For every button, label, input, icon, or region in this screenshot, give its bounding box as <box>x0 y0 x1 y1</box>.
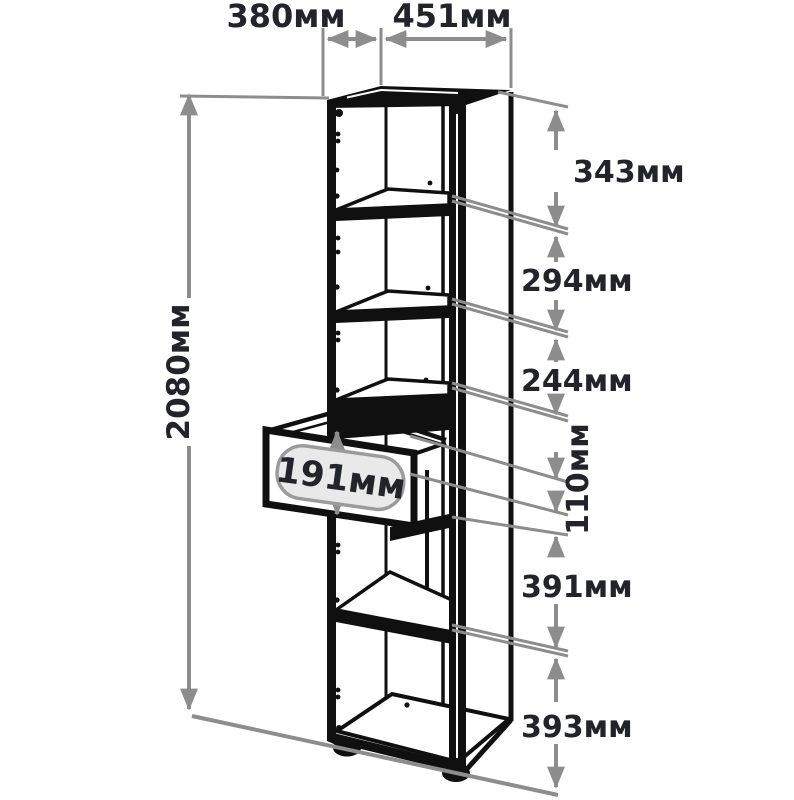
section-label-343: 343мм <box>573 155 685 190</box>
shelf-2 <box>336 291 449 323</box>
shelf-1 <box>336 189 449 221</box>
section-label-393: 393мм <box>521 710 633 745</box>
section-label-294: 294мм <box>521 264 633 299</box>
cabinet-drawing <box>266 86 511 782</box>
section-label-391: 391мм <box>521 570 633 605</box>
width-label: 451мм <box>392 0 511 35</box>
dimension-diagram-canvas: 191мм 380мм 451мм 2080мм 343мм 294мм 244… <box>0 0 794 800</box>
furniture-dimension-diagram: 191мм 380мм 451мм 2080мм 343мм 294мм 244… <box>0 0 794 800</box>
shelf-4 <box>336 572 452 644</box>
section-label-244: 244мм <box>521 364 633 399</box>
total-height-label: 2080мм <box>161 304 197 441</box>
section-label-110: 110мм <box>561 423 596 535</box>
cabinet-top <box>327 86 511 108</box>
depth-label: 380мм <box>226 0 345 35</box>
